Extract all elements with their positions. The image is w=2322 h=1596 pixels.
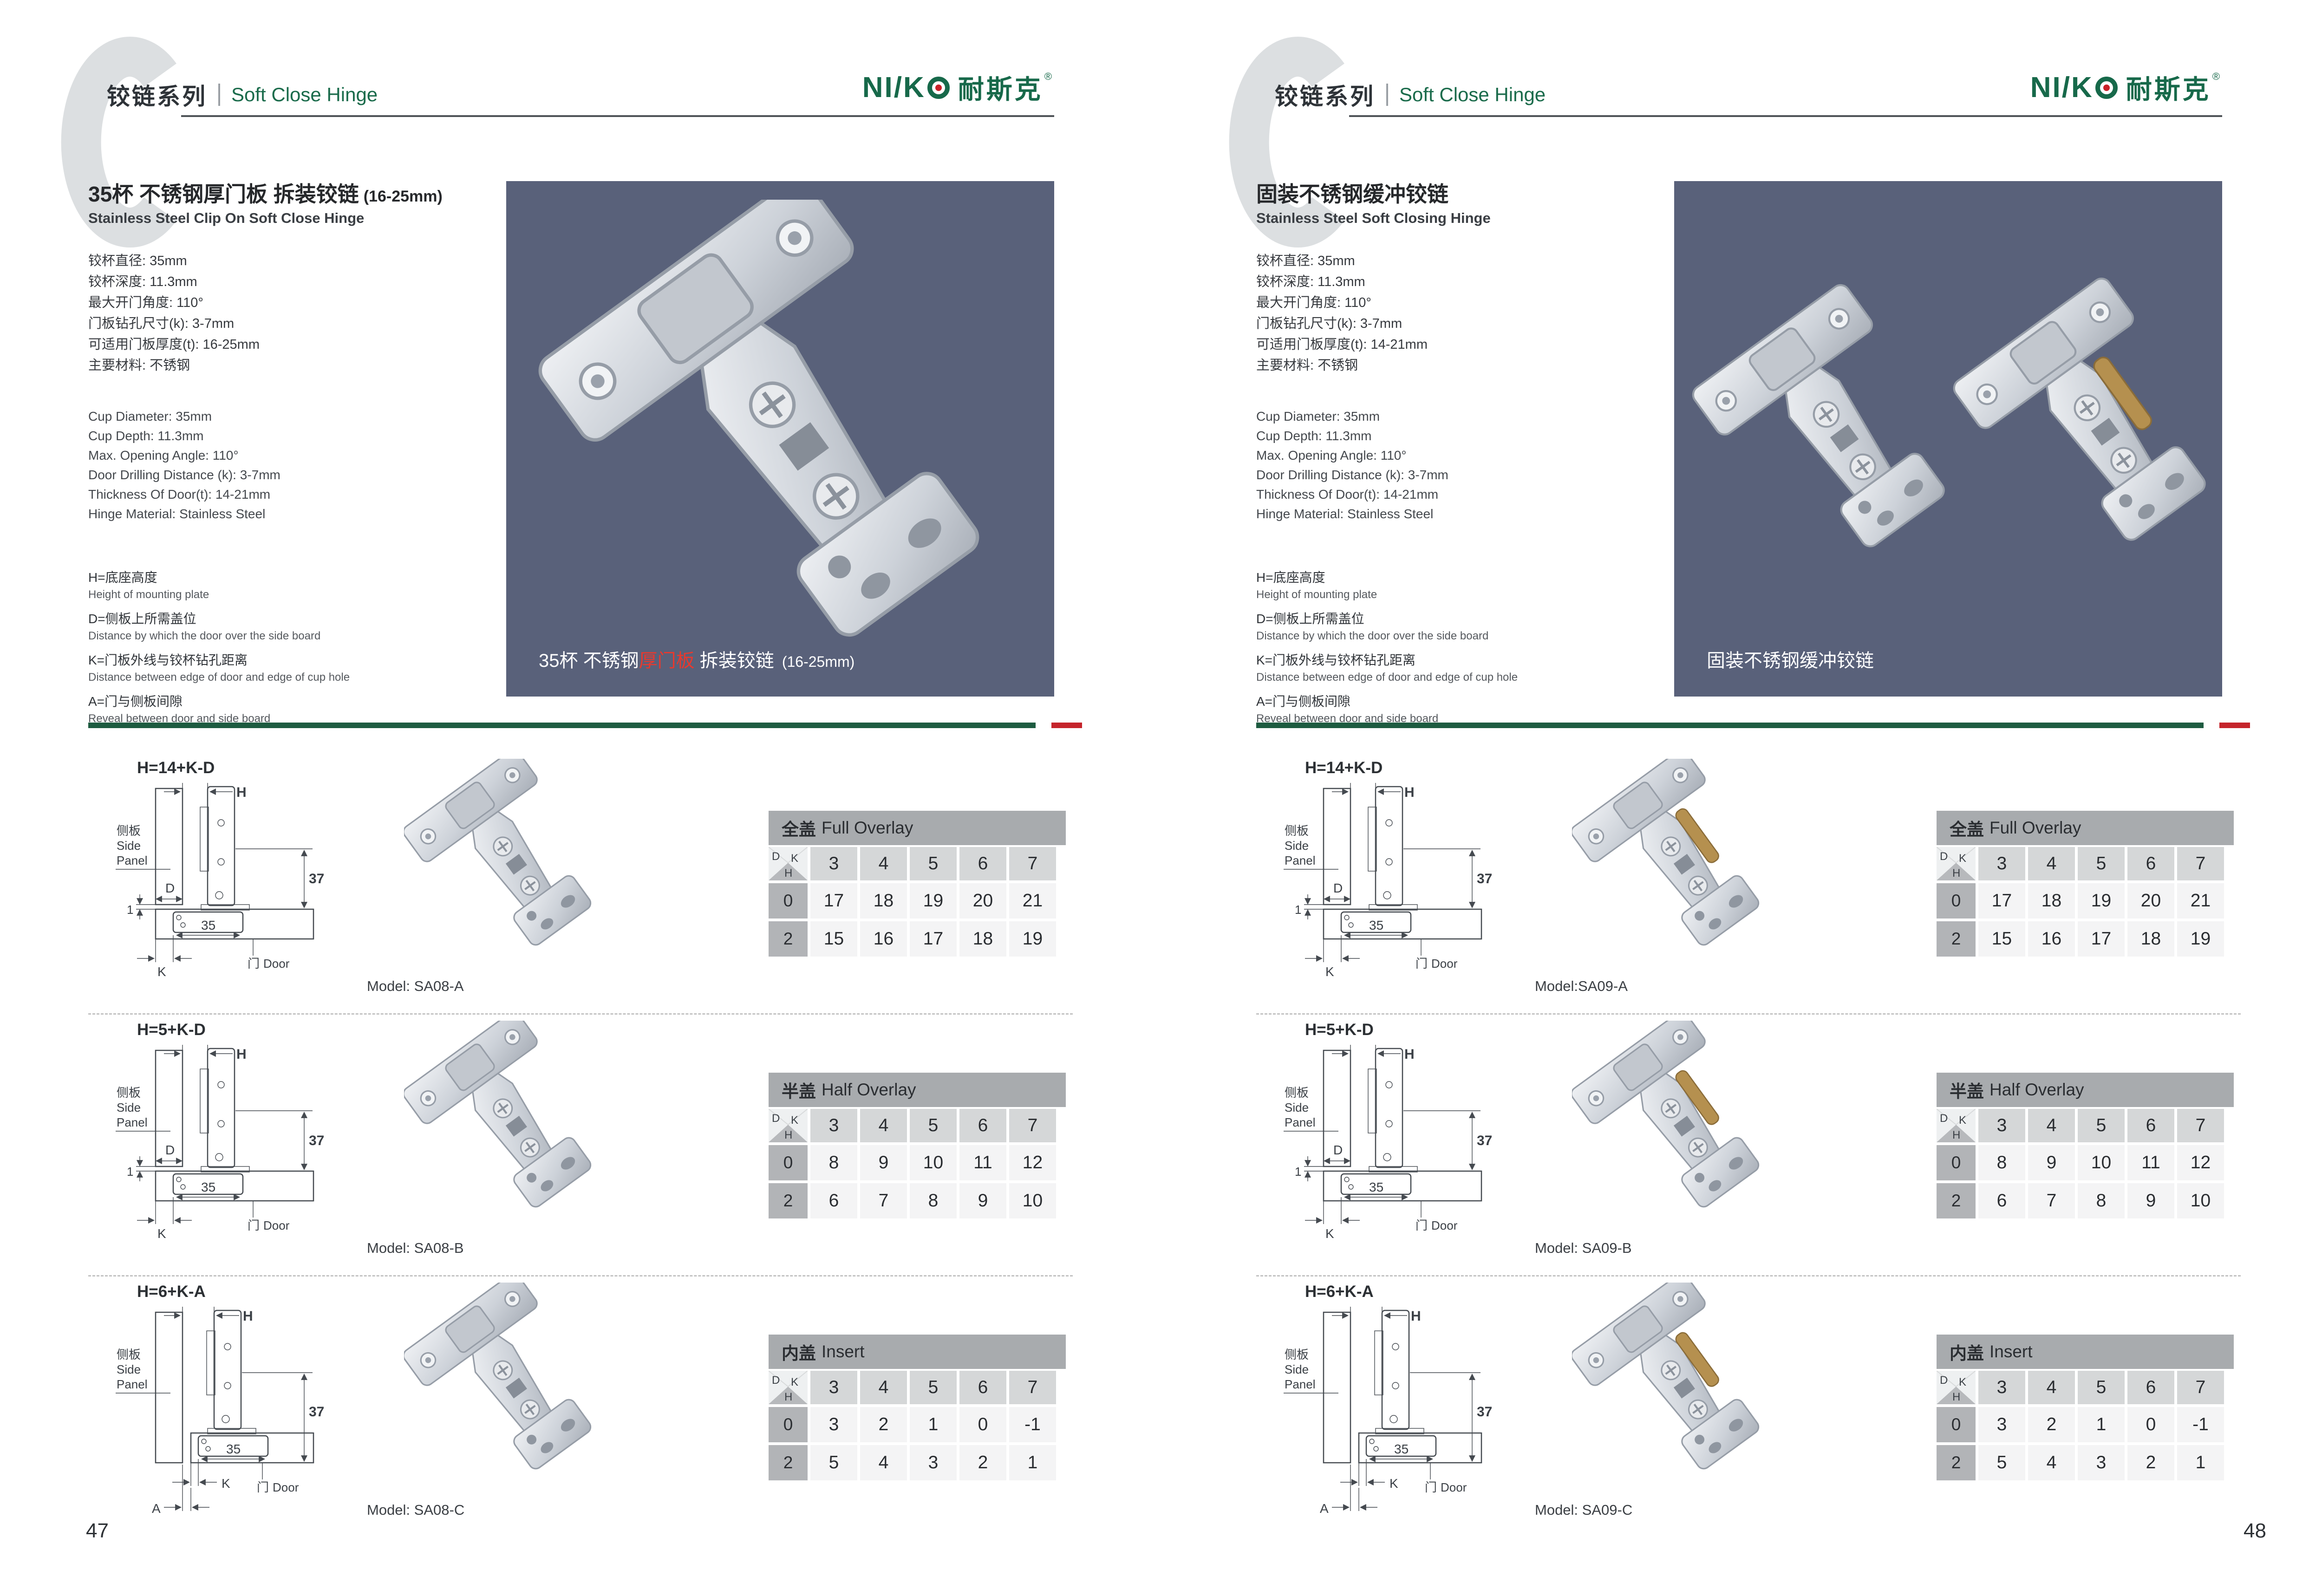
k-value-cell: 3 (1978, 1371, 2025, 1404)
legend-cn: K=门板外线与铰杯钻孔距离 (1256, 650, 1702, 669)
h-value-cell: 2 (769, 921, 808, 957)
logo-latin-text: NI/K (862, 71, 926, 104)
series-title-cn: 铰链系列 (107, 78, 207, 111)
h-value-cell: 0 (769, 883, 808, 919)
value-cell: 4 (2028, 1445, 2075, 1480)
row-hinge-photo (385, 1283, 627, 1492)
model-label: Model: SA09-B (1535, 1240, 1632, 1257)
model-label: Model:SA09-A (1535, 978, 1628, 995)
spec-line: 主要材料: 不锈钢 (1256, 355, 1428, 376)
value-cell: 10 (2078, 1145, 2125, 1180)
table-title: 半盖Half Overlay (769, 1073, 1066, 1107)
series-title-cn: 铰链系列 (1275, 78, 1375, 111)
value-cell: 19 (2078, 883, 2125, 919)
model-label: Model: SA09-C (1535, 1502, 1632, 1518)
mounting-drawing: H=5+K-D (109, 1018, 355, 1264)
page-number: 48 (2244, 1519, 2266, 1543)
main-product-photo: 35杯 不锈钢厚门板 拆装铰链 (16-25mm) (506, 181, 1054, 697)
value-cell: 3 (910, 1445, 957, 1480)
table-data-row: 2678910 (769, 1183, 1056, 1218)
value-cell: 16 (860, 921, 907, 957)
table-data-row: 03210-1 (769, 1407, 1056, 1442)
k-value-cell: 6 (959, 847, 1006, 880)
specs-english: Cup Diameter: 35mmCup Depth: 11.3mmMax. … (1256, 407, 1448, 524)
k-value-cell: 3 (1978, 1109, 2025, 1142)
k-value-cell: 4 (860, 1371, 907, 1404)
row-hinge-photo (1553, 1021, 1795, 1230)
spec-line: Cup Depth: 11.3mm (1256, 426, 1448, 446)
value-cell: 7 (2028, 1183, 2075, 1218)
h-value-cell: 2 (1937, 921, 1976, 957)
spec-line: 门板钻孔尺寸(k): 3-7mm (88, 313, 260, 334)
product-subtitle: Stainless Steel Clip On Soft Close Hinge (88, 210, 364, 227)
table-data-row: 2678910 (1937, 1183, 2224, 1218)
value-cell: 21 (1009, 883, 1056, 919)
value-cell: 20 (2127, 883, 2174, 919)
spec-line: Door Drilling Distance (k): 3-7mm (88, 465, 280, 485)
row-hinge-photo (1553, 759, 1795, 968)
table-title: 全盖Full Overlay (1937, 811, 2234, 845)
spec-line: Cup Diameter: 35mm (88, 407, 280, 426)
mounting-drawing: H=5+K-D (1277, 1018, 1523, 1264)
k-header-row: 34567 (1937, 1371, 2224, 1404)
value-cell: 18 (860, 883, 907, 919)
k-value-cell: 3 (810, 1109, 857, 1142)
legend-item: A=门与侧板间隙Reveal between door and side boa… (1256, 691, 1702, 725)
row-hinge-photo (1553, 1283, 1795, 1492)
series-divider (1386, 84, 1388, 106)
dimension-legend: H=底座高度Height of mounting plate D=侧板上所需盖位… (1256, 567, 1702, 733)
h-value-cell: 2 (1937, 1445, 1976, 1480)
table-corner-cell (769, 847, 808, 880)
value-cell: 21 (2177, 883, 2224, 919)
k-value-cell: 5 (2078, 1109, 2125, 1142)
k-header-row: 34567 (769, 1371, 1056, 1404)
legend-en: Distance between edge of door and edge o… (88, 671, 534, 684)
mounting-drawing: H=6+K-A (109, 1280, 355, 1526)
k-header-row: 34567 (769, 847, 1056, 880)
config-row-half-overlay: H=5+K-D Model: SA08-B 半盖Half Overlay 345… (0, 1018, 1168, 1278)
value-cell: 2 (959, 1445, 1006, 1480)
row-separator (88, 1013, 1073, 1015)
logo-chinese-text: 耐斯克 (2126, 69, 2211, 106)
spec-line: Max. Opening Angle: 110° (88, 446, 280, 465)
k-value-cell: 4 (2028, 847, 2075, 880)
value-cell: 15 (810, 921, 857, 957)
spec-line: 可适用门板厚度(t): 14-21mm (1256, 334, 1428, 355)
spec-line: Cup Depth: 11.3mm (88, 426, 280, 446)
legend-item: H=底座高度Height of mounting plate (88, 567, 534, 601)
k-header-row: 34567 (1937, 847, 2224, 880)
value-cell: 11 (2127, 1145, 2174, 1180)
overlay-table: 内盖Insert 34567 03210-1 254321 (1937, 1335, 2234, 1483)
table-corner-cell (1937, 1109, 1976, 1142)
value-cell: 6 (1978, 1183, 2025, 1218)
spec-line: 最大开门角度: 110° (1256, 293, 1428, 313)
k-value-cell: 5 (2078, 1371, 2125, 1404)
catalog-page-48: 铰链系列 Soft Close Hinge NI/K 耐斯克 ® 固装不锈钢缓冲… (1168, 0, 2322, 1596)
row-separator (1256, 1013, 2241, 1015)
table-data-row: 254321 (1937, 1445, 2224, 1480)
legend-item: D=侧板上所需盖位Distance by which the door over… (88, 609, 534, 643)
value-cell: 5 (810, 1445, 857, 1480)
k-header-row: 34567 (769, 1109, 1056, 1142)
section-divider-red (2219, 723, 2250, 728)
value-cell: 2 (860, 1407, 907, 1442)
model-label: Model: SA08-B (367, 1240, 464, 1257)
table-data-row: 03210-1 (1937, 1407, 2224, 1442)
value-cell: 20 (959, 883, 1006, 919)
product-title: 35杯 不锈钢厚门板 拆装铰链(16-25mm) (88, 177, 443, 208)
page-number: 47 (86, 1519, 109, 1543)
value-cell: 2 (2028, 1407, 2075, 1442)
overlay-table: 全盖Full Overlay 34567 01718192021 2151617… (1937, 811, 2234, 959)
k-value-cell: 4 (2028, 1371, 2075, 1404)
value-cell: 11 (959, 1145, 1006, 1180)
legend-en: Distance between edge of door and edge o… (1256, 671, 1702, 684)
value-cell: 8 (910, 1183, 957, 1218)
table-data-row: 089101112 (769, 1145, 1056, 1180)
k-value-cell: 7 (1009, 1109, 1056, 1142)
value-cell: 1 (2078, 1407, 2125, 1442)
photo-caption: 35杯 不锈钢厚门板 拆装铰链 (16-25mm) (539, 645, 854, 672)
config-row-half-overlay: H=5+K-D Model: SA09-B 半盖Half Overlay 345… (1168, 1018, 2322, 1278)
height-formula: H=14+K-D (1305, 759, 1383, 777)
config-row-full-overlay: H=14+K-D Model: SA08-A 全盖Full Overlay 34… (0, 756, 1168, 1016)
spec-line: 铰杯深度: 11.3mm (1256, 272, 1428, 293)
table-title: 内盖Insert (769, 1335, 1066, 1369)
value-cell: 8 (1978, 1145, 2025, 1180)
legend-item: D=侧板上所需盖位Distance by which the door over… (1256, 609, 1702, 643)
legend-cn: H=底座高度 (1256, 567, 1702, 586)
logo-red-dot-icon (2103, 85, 2110, 91)
height-formula: H=5+K-D (1305, 1021, 1374, 1039)
value-cell: 0 (959, 1407, 1006, 1442)
value-cell: 5 (1978, 1445, 2025, 1480)
config-row-full-overlay: H=14+K-D Model:SA09-A 全盖Full Overlay 345… (1168, 756, 2322, 1016)
value-cell: 17 (1978, 883, 2025, 919)
model-label: Model: SA08-A (367, 978, 464, 995)
value-cell: 8 (2078, 1183, 2125, 1218)
registered-mark: ® (2212, 71, 2220, 83)
value-cell: 19 (2177, 921, 2224, 957)
table-title: 内盖Insert (1937, 1335, 2234, 1369)
table-corner-cell (769, 1109, 808, 1142)
config-row-insert: H=6+K-A Model: SA08-C 内盖Insert 34567 032… (0, 1280, 1168, 1540)
height-formula: H=6+K-A (137, 1283, 206, 1301)
spec-line: Max. Opening Angle: 110° (1256, 446, 1448, 465)
spec-line: 铰杯直径: 35mm (88, 251, 260, 272)
values-table: 34567 03210-1 254321 (766, 1368, 1059, 1483)
k-value-cell: 6 (2127, 1371, 2174, 1404)
catalog-spread: 铰链系列 Soft Close Hinge NI/K 耐斯克 ® 35杯 不锈钢… (0, 0, 2322, 1596)
legend-cn: A=门与侧板间隙 (88, 691, 534, 710)
legend-item: K=门板外线与铰杯钻孔距离Distance between edge of do… (1256, 650, 1702, 684)
logo-latin-text: NI/K (2030, 71, 2094, 104)
spec-line: 主要材料: 不锈钢 (88, 355, 260, 376)
table-title: 全盖Full Overlay (769, 811, 1066, 845)
brand-logo: NI/K 耐斯克 ® (862, 69, 1052, 106)
value-cell: 17 (2078, 921, 2125, 957)
k-value-cell: 5 (910, 847, 957, 880)
config-row-insert: H=6+K-A Model: SA09-C 内盖Insert 34567 032… (1168, 1280, 2322, 1540)
overlay-table: 半盖Half Overlay 34567 089101112 2678910 (1937, 1073, 2234, 1221)
value-cell: 18 (959, 921, 1006, 957)
h-value-cell: 0 (1937, 883, 1976, 919)
k-value-cell: 7 (2177, 847, 2224, 880)
main-product-photo: 固装不锈钢缓冲铰链 (1674, 181, 2222, 697)
spec-line: 铰杯直径: 35mm (1256, 251, 1428, 272)
k-value-cell: 4 (860, 1109, 907, 1142)
overlay-table: 全盖Full Overlay 34567 01718192021 2151617… (769, 811, 1066, 959)
logo-chinese-text: 耐斯克 (958, 69, 1043, 106)
table-data-row: 21516171819 (769, 921, 1056, 957)
legend-cn: K=门板外线与铰杯钻孔距离 (88, 650, 534, 669)
legend-cn: A=门与侧板间隙 (1256, 691, 1702, 710)
mounting-drawing: H=14+K-D (1277, 756, 1523, 1002)
legend-en: Height of mounting plate (1256, 588, 1702, 601)
header-rule (181, 115, 1054, 117)
value-cell: 3 (810, 1407, 857, 1442)
logo-o-icon (2095, 77, 2118, 99)
legend-item: H=底座高度Height of mounting plate (1256, 567, 1702, 601)
k-value-cell: 4 (860, 847, 907, 880)
height-formula: H=14+K-D (137, 759, 215, 777)
value-cell: 18 (2127, 921, 2174, 957)
value-cell: 15 (1978, 921, 2025, 957)
series-header: 铰链系列 Soft Close Hinge (1275, 78, 1546, 111)
spec-line: Thickness Of Door(t): 14-21mm (88, 485, 280, 504)
value-cell: 3 (1978, 1407, 2025, 1442)
k-value-cell: 4 (2028, 1109, 2075, 1142)
values-table: 34567 03210-1 254321 (1934, 1368, 2227, 1483)
product-title-suffix: (16-25mm) (364, 188, 443, 205)
legend-cn: D=侧板上所需盖位 (88, 609, 534, 627)
k-value-cell: 3 (810, 847, 857, 880)
product-subtitle: Stainless Steel Soft Closing Hinge (1256, 210, 1491, 227)
value-cell: 17 (910, 921, 957, 957)
model-label: Model: SA08-C (367, 1502, 464, 1518)
k-value-cell: 7 (2177, 1109, 2224, 1142)
height-formula: H=6+K-A (1305, 1283, 1374, 1301)
k-value-cell: 6 (959, 1109, 1006, 1142)
header-rule (1349, 115, 2222, 117)
h-value-cell: 2 (769, 1445, 808, 1480)
h-value-cell: 2 (769, 1183, 808, 1218)
spec-line: Cup Diameter: 35mm (1256, 407, 1448, 426)
k-header-row: 34567 (1937, 1109, 2224, 1142)
k-value-cell: 6 (959, 1371, 1006, 1404)
value-cell: 8 (810, 1145, 857, 1180)
value-cell: 3 (2078, 1445, 2125, 1480)
value-cell: 9 (860, 1145, 907, 1180)
specs-english: Cup Diameter: 35mmCup Depth: 11.3mmMax. … (88, 407, 280, 524)
values-table: 34567 01718192021 21516171819 (1934, 844, 2227, 959)
section-divider-green (1256, 723, 2204, 728)
table-data-row: 254321 (769, 1445, 1056, 1480)
values-table: 34567 089101112 2678910 (1934, 1106, 2227, 1221)
value-cell: 19 (1009, 921, 1056, 957)
value-cell: 1 (910, 1407, 957, 1442)
value-cell: 19 (910, 883, 957, 919)
table-corner-cell (1937, 847, 1976, 880)
value-cell: 2 (2127, 1445, 2174, 1480)
value-cell: 12 (1009, 1145, 1056, 1180)
k-value-cell: 3 (810, 1371, 857, 1404)
value-cell: 9 (2028, 1145, 2075, 1180)
registered-mark: ® (1044, 71, 1052, 83)
spec-line: Hinge Material: Stainless Steel (1256, 504, 1448, 524)
spec-line: Door Drilling Distance (k): 3-7mm (1256, 465, 1448, 485)
h-value-cell: 2 (1937, 1183, 1976, 1218)
table-data-row: 21516171819 (1937, 921, 2224, 957)
k-value-cell: 6 (2127, 847, 2174, 880)
legend-item: A=门与侧板间隙Reveal between door and side boa… (88, 691, 534, 725)
value-cell: 1 (2177, 1445, 2224, 1480)
k-value-cell: 3 (1978, 847, 2025, 880)
value-cell: -1 (2177, 1407, 2224, 1442)
logo-o-icon (927, 77, 950, 99)
table-data-row: 089101112 (1937, 1145, 2224, 1180)
h-value-cell: 0 (769, 1407, 808, 1442)
mounting-drawing: H=14+K-D (109, 756, 355, 1002)
series-title-en: Soft Close Hinge (231, 84, 378, 106)
value-cell: 7 (860, 1183, 907, 1218)
logo-red-dot-icon (935, 85, 942, 91)
spec-line: 门板钻孔尺寸(k): 3-7mm (1256, 313, 1428, 334)
catalog-page-47: 铰链系列 Soft Close Hinge NI/K 耐斯克 ® 35杯 不锈钢… (0, 0, 1168, 1596)
section-divider-red (1051, 723, 1082, 728)
h-value-cell: 0 (769, 1145, 808, 1180)
k-value-cell: 7 (2177, 1371, 2224, 1404)
series-divider (218, 84, 220, 106)
series-header: 铰链系列 Soft Close Hinge (107, 78, 378, 111)
value-cell: 9 (2127, 1183, 2174, 1218)
legend-en: Distance by which the door over the side… (88, 630, 534, 643)
product-title: 固装不锈钢缓冲铰链 (1256, 177, 1453, 208)
row-separator (88, 1275, 1073, 1277)
k-value-cell: 5 (910, 1109, 957, 1142)
legend-cn: D=侧板上所需盖位 (1256, 609, 1702, 627)
table-corner-cell (769, 1371, 808, 1404)
spec-line: 铰杯深度: 11.3mm (88, 272, 260, 293)
section-divider-green (88, 723, 1036, 728)
table-corner-cell (1937, 1371, 1976, 1404)
legend-item: K=门板外线与铰杯钻孔距离Distance between edge of do… (88, 650, 534, 684)
legend-en: Height of mounting plate (88, 588, 534, 601)
k-value-cell: 6 (2127, 1109, 2174, 1142)
k-value-cell: 7 (1009, 847, 1056, 880)
value-cell: 4 (860, 1445, 907, 1480)
specs-chinese: 铰杯直径: 35mm铰杯深度: 11.3mm最大开门角度: 110°门板钻孔尺寸… (88, 251, 260, 376)
spec-line: 可适用门板厚度(t): 16-25mm (88, 334, 260, 355)
legend-en: Distance by which the door over the side… (1256, 630, 1702, 643)
photo-caption: 固装不锈钢缓冲铰链 (1707, 645, 1877, 672)
table-data-row: 01718192021 (769, 883, 1056, 919)
overlay-table: 内盖Insert 34567 03210-1 254321 (769, 1335, 1066, 1483)
value-cell: -1 (1009, 1407, 1056, 1442)
h-value-cell: 0 (1937, 1145, 1976, 1180)
spec-line: Hinge Material: Stainless Steel (88, 504, 280, 524)
overlay-table: 半盖Half Overlay 34567 089101112 2678910 (769, 1073, 1066, 1221)
table-title: 半盖Half Overlay (1937, 1073, 2234, 1107)
table-data-row: 01718192021 (1937, 883, 2224, 919)
value-cell: 1 (1009, 1445, 1056, 1480)
row-hinge-photo (385, 1021, 627, 1230)
spec-line: Thickness Of Door(t): 14-21mm (1256, 485, 1448, 504)
dimension-legend: H=底座高度Height of mounting plate D=侧板上所需盖位… (88, 567, 534, 733)
k-value-cell: 5 (910, 1371, 957, 1404)
value-cell: 6 (810, 1183, 857, 1218)
value-cell: 9 (959, 1183, 1006, 1218)
h-value-cell: 0 (1937, 1407, 1976, 1442)
spec-line: 最大开门角度: 110° (88, 293, 260, 313)
k-value-cell: 5 (2078, 847, 2125, 880)
row-separator (1256, 1275, 2241, 1277)
legend-cn: H=底座高度 (88, 567, 534, 586)
value-cell: 12 (2177, 1145, 2224, 1180)
series-title-en: Soft Close Hinge (1399, 84, 1546, 106)
specs-chinese: 铰杯直径: 35mm铰杯深度: 11.3mm最大开门角度: 110°门板钻孔尺寸… (1256, 251, 1428, 376)
k-value-cell: 7 (1009, 1371, 1056, 1404)
value-cell: 10 (2177, 1183, 2224, 1218)
value-cell: 10 (910, 1145, 957, 1180)
caption-red-text: 厚门板 (639, 651, 695, 671)
values-table: 34567 089101112 2678910 (766, 1106, 1059, 1221)
value-cell: 17 (810, 883, 857, 919)
values-table: 34567 01718192021 21516171819 (766, 844, 1059, 959)
height-formula: H=5+K-D (137, 1021, 206, 1039)
value-cell: 10 (1009, 1183, 1056, 1218)
row-hinge-photo (385, 759, 627, 968)
value-cell: 16 (2028, 921, 2075, 957)
value-cell: 18 (2028, 883, 2075, 919)
brand-logo: NI/K 耐斯克 ® (2030, 69, 2220, 106)
value-cell: 0 (2127, 1407, 2174, 1442)
mounting-drawing: H=6+K-A (1277, 1280, 1523, 1526)
